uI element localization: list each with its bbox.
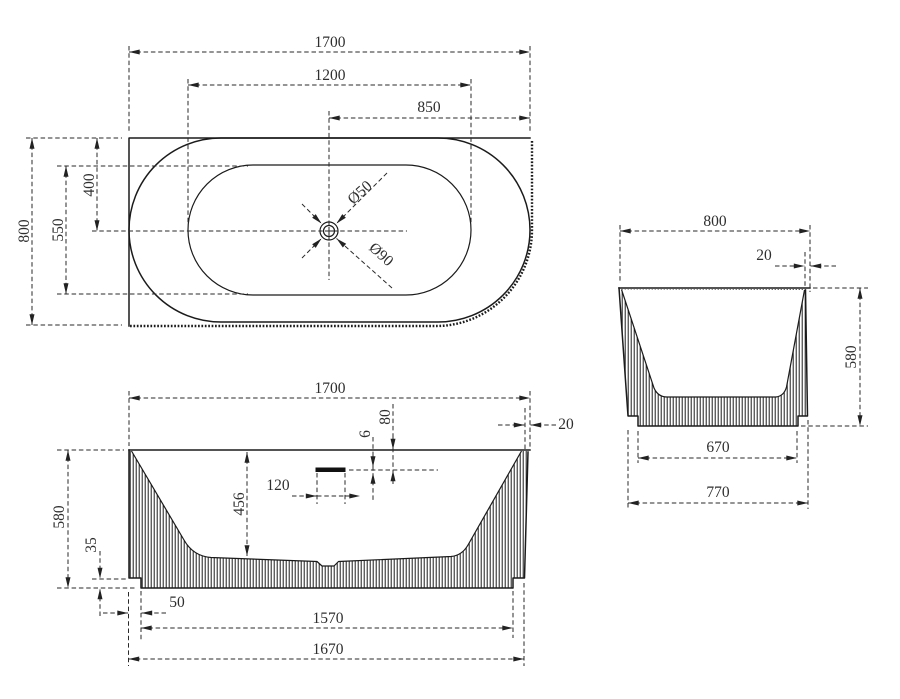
front-base-inset-label: 50 (169, 594, 185, 611)
top-view: 1700 1200 850 800 550 400 Ø50 Ø90 (16, 34, 532, 326)
front-shell-length-label: 1670 (313, 641, 344, 658)
front-overflow-slot-label: 6 (357, 430, 374, 438)
plan-drain-to-end-label: 850 (417, 99, 441, 116)
side-rim-lip-label: 20 (756, 247, 772, 264)
side-view: 800 20 580 670 770 (619, 213, 868, 509)
front-rim-lip-label: 20 (558, 416, 574, 433)
side-height-overall-label: 580 (843, 345, 860, 369)
plan-drain-to-back-label: 400 (81, 173, 98, 197)
plan-width-overall-label: 800 (16, 219, 33, 243)
front-view: 1700 20 80 6 120 456 580 35 50 1570 1670 (51, 380, 574, 666)
plan-fluted-edge (129, 141, 532, 326)
drain-leader-nw (302, 204, 322, 224)
side-base-width-label: 670 (706, 439, 730, 456)
side-shell-width-label: 770 (706, 484, 730, 501)
front-inner-depth-label: 456 (231, 492, 248, 516)
plan-length-inner-label: 1200 (315, 67, 346, 84)
front-overflow-drop-label: 80 (377, 409, 394, 425)
front-length-overall-label: 1700 (315, 380, 346, 397)
drain-leader-sw (302, 239, 322, 259)
drain-diameter-label: Ø50 (344, 177, 375, 208)
waste-diameter-label: Ø90 (365, 239, 396, 270)
plan-width-inner-label: 550 (50, 218, 67, 242)
side-width-overall-label: 800 (703, 213, 727, 230)
front-overflow-length-label: 120 (266, 477, 290, 494)
side-flute-hatch (619, 289, 808, 426)
plan-length-overall-label: 1700 (315, 34, 346, 51)
side-extension-lines (620, 225, 868, 509)
bathtub-technical-drawing: 1700 1200 850 800 550 400 Ø50 Ø90 (0, 0, 900, 699)
plan-extension-lines (26, 46, 530, 325)
front-base-length-label: 1570 (313, 610, 344, 627)
front-height-overall-label: 580 (51, 505, 68, 529)
drawing-sheet: 1700 1200 850 800 550 400 Ø50 Ø90 (0, 0, 900, 699)
front-extension-lines (57, 391, 530, 666)
front-base-recess-label: 35 (83, 537, 100, 553)
overflow-slot (316, 468, 346, 473)
